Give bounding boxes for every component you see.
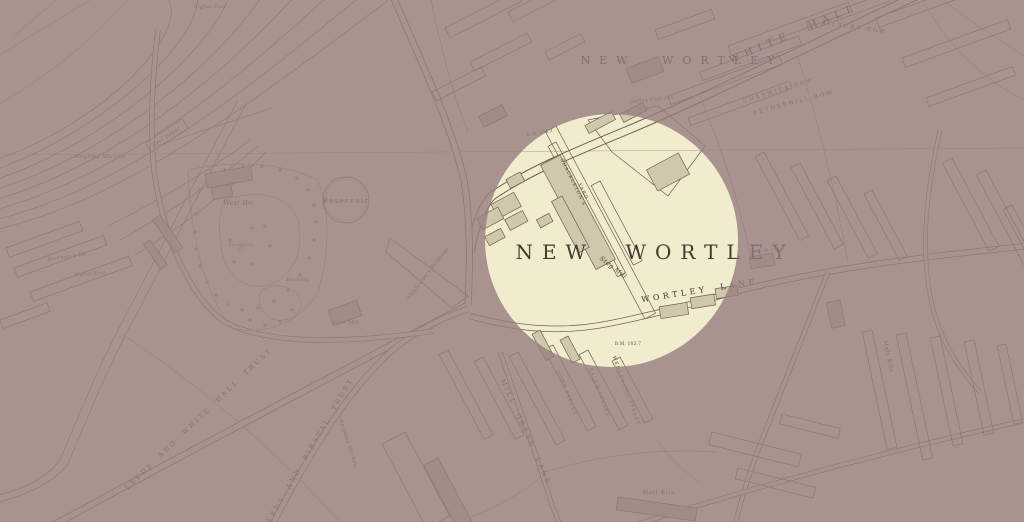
label-benchmark-2: B.M. 103.7 [615, 341, 641, 346]
map-viewport: NEW WORTLEY NEW WORTLEY WHITE HALL KILBU… [0, 0, 1024, 522]
map-canvas[interactable]: NEW WORTLEY NEW WORTLEY WHITE HALL KILBU… [0, 0, 1024, 522]
